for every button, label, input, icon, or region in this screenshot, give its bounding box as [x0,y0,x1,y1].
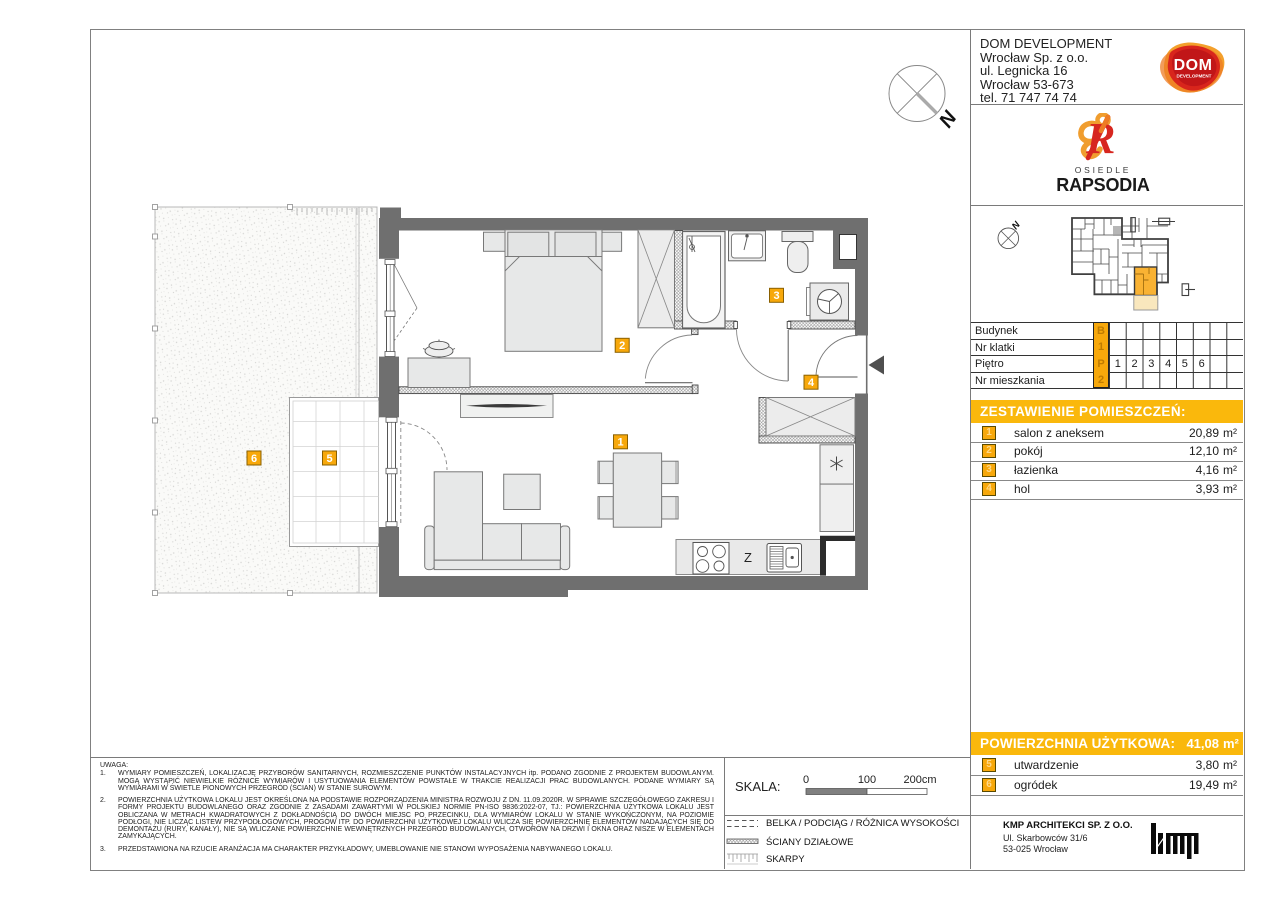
svg-text:2: 2 [619,340,625,352]
svg-text:4: 4 [808,377,815,389]
svg-text:Z: Z [744,550,752,565]
svg-text:0: 0 [803,774,809,786]
svg-text:DEVELOPMENT: DEVELOPMENT [1177,74,1212,79]
svg-text:6: 6 [251,453,257,465]
svg-text:3: 3 [773,290,779,302]
svg-text:200cm: 200cm [903,774,936,786]
svg-text:1: 1 [617,437,623,449]
svg-text:5: 5 [326,453,332,465]
svg-text:100: 100 [858,774,876,786]
svg-text:DOM: DOM [1174,57,1213,74]
svg-text:N: N [1010,219,1024,232]
